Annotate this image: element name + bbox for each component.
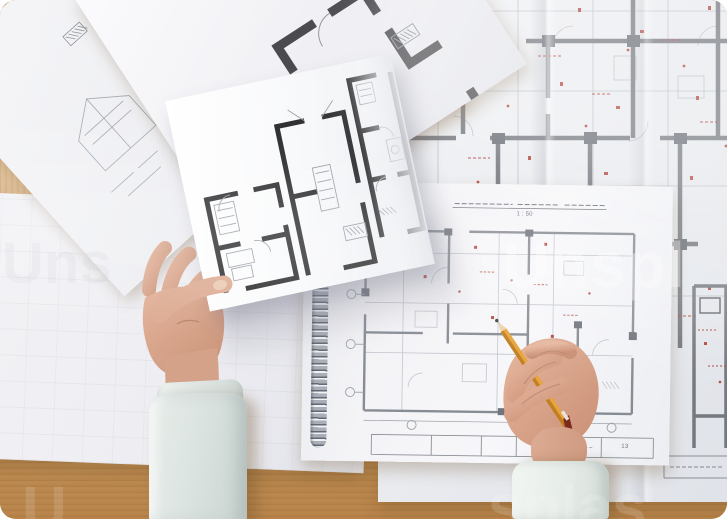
photo-architect-desk: 1 : 50 13 [0,0,727,519]
left-sleeve [149,393,247,519]
blueprint-titleblock [664,456,727,478]
screenshot: 1 : 50 13 [0,0,727,519]
right-cuff [512,461,609,519]
